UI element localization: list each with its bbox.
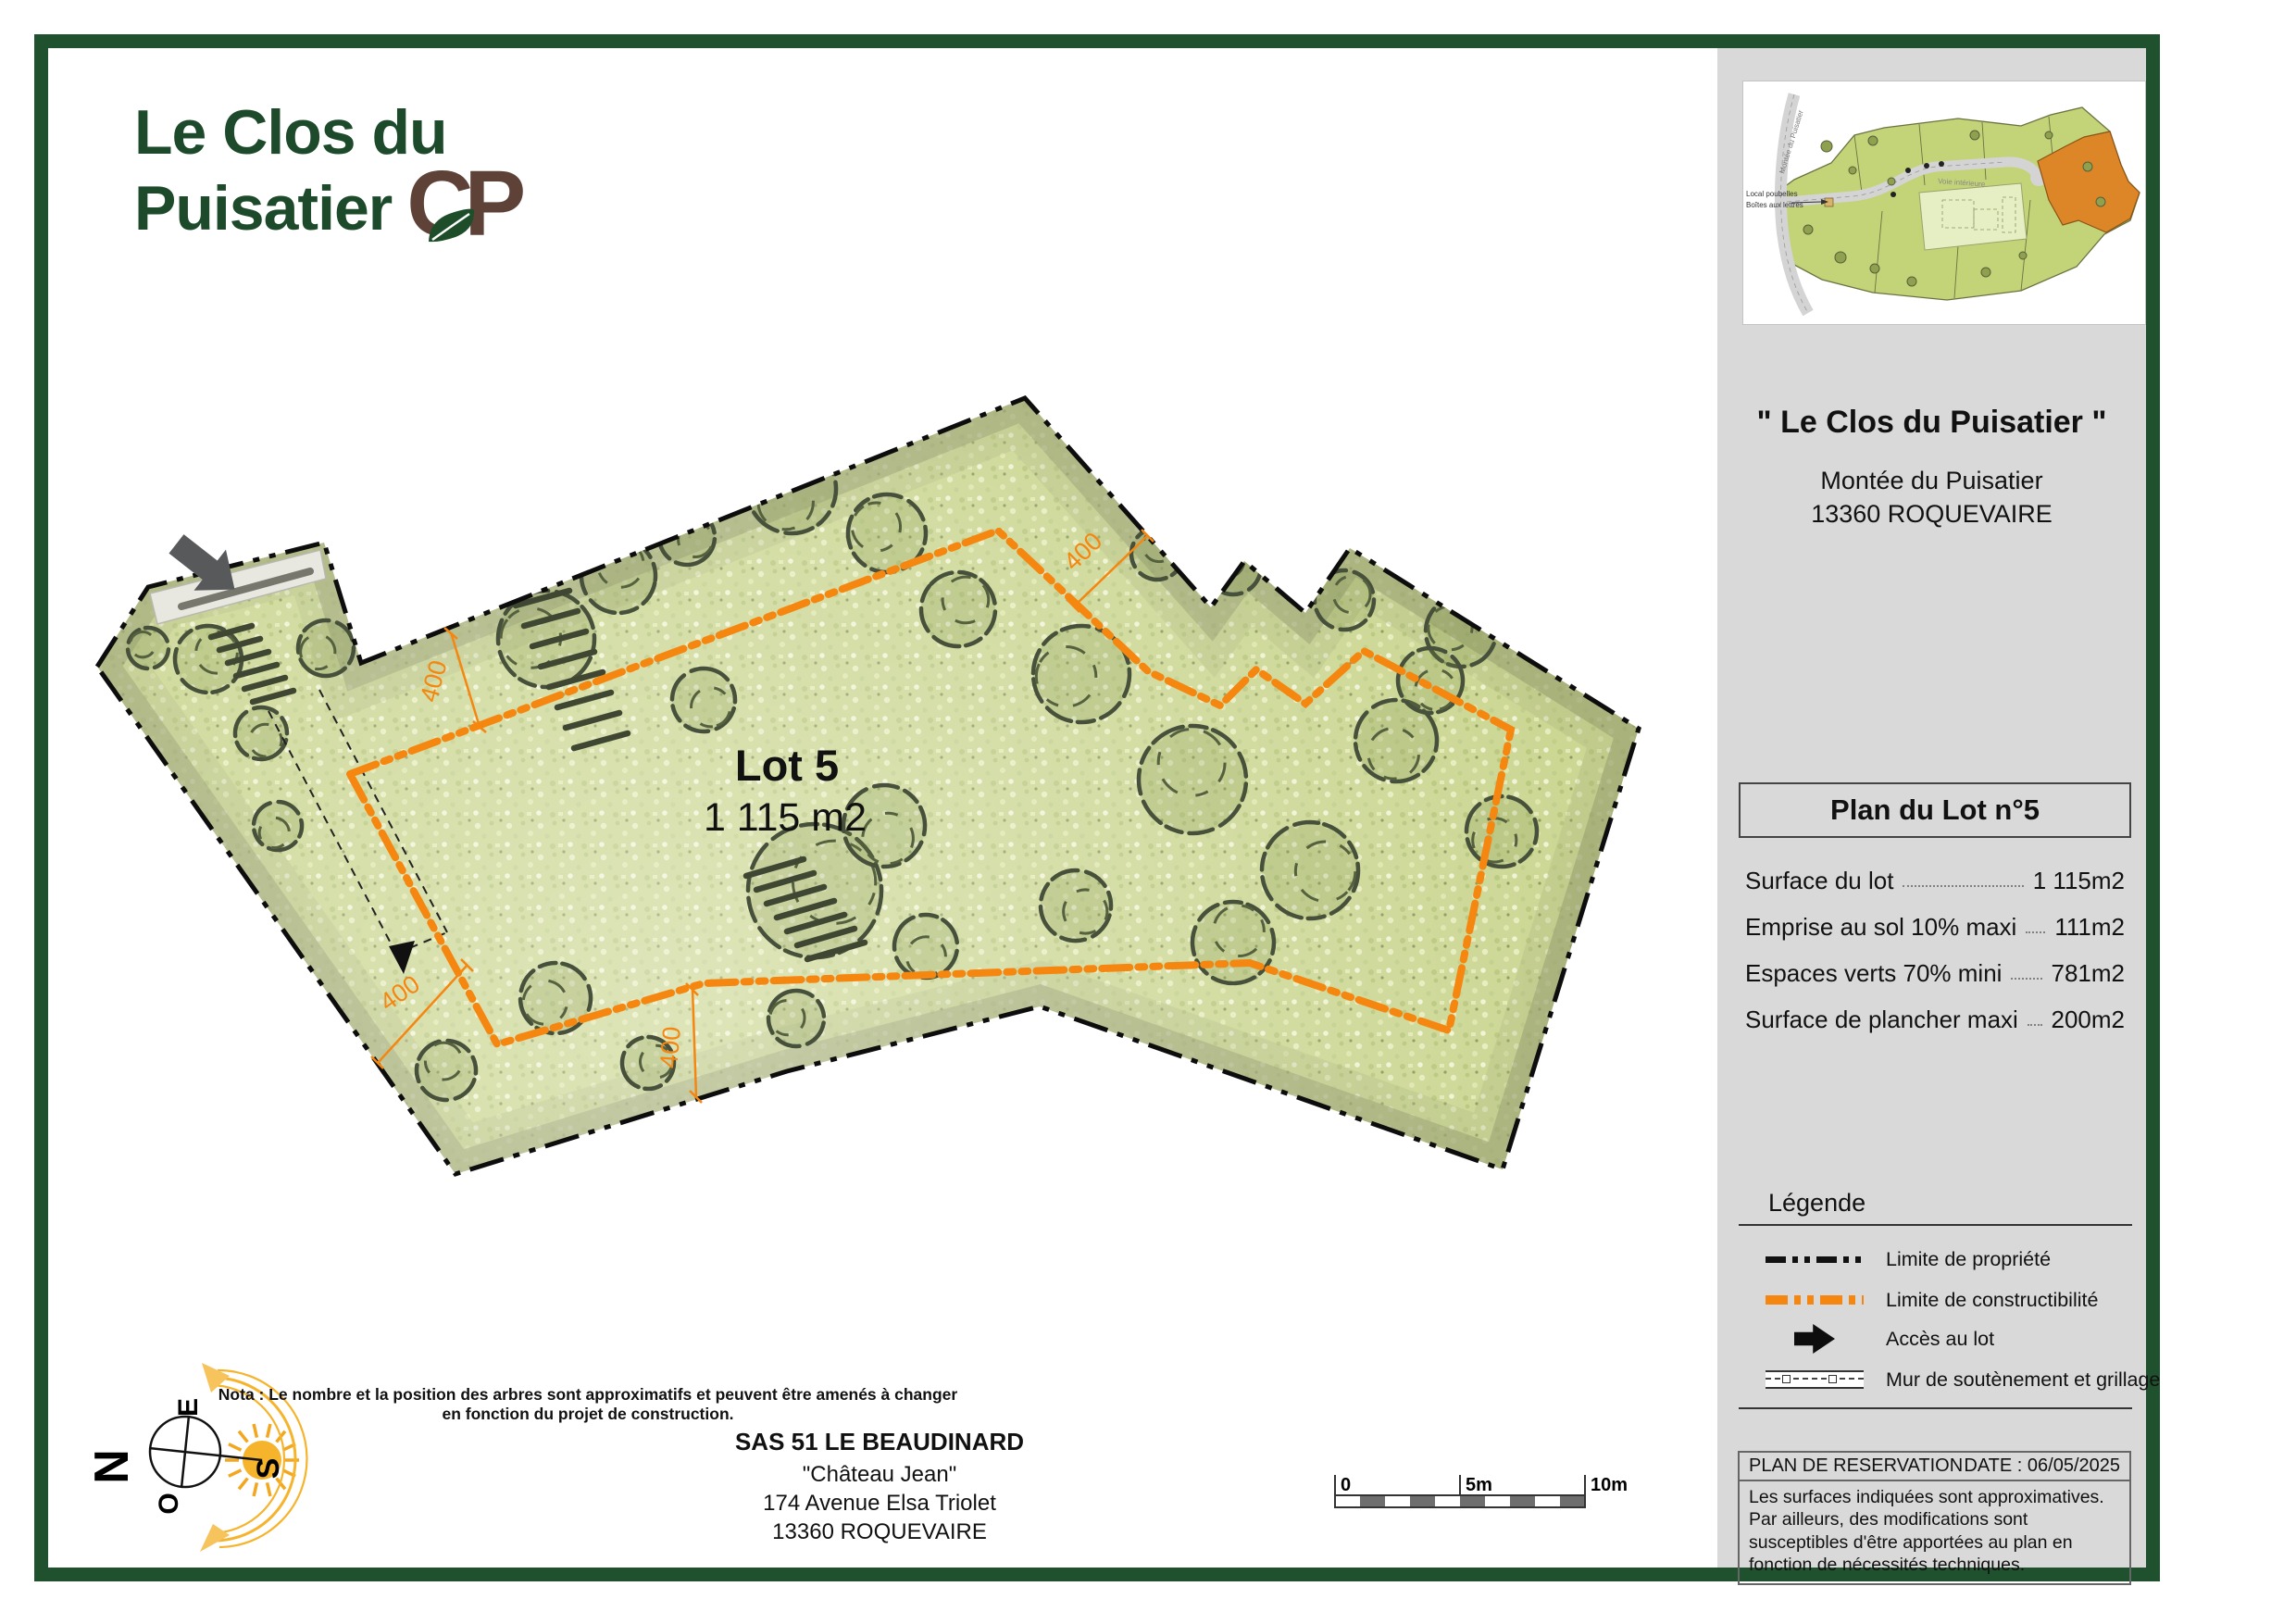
row-value: 1 115m2 xyxy=(2033,867,2125,895)
lot-area-label: 1 115 m2 xyxy=(704,795,867,840)
legend-item-constructibility: Limite de constructibilité xyxy=(1764,1281,2134,1318)
sidebar-address-line1: Montée du Puisatier xyxy=(1717,467,2146,495)
dotted-leader xyxy=(2011,978,2041,980)
table-row: Surface du lot 1 115m2 xyxy=(1745,867,2125,895)
legend-title: Légende xyxy=(1768,1189,1865,1218)
constructibility-line-sample xyxy=(1766,1295,1864,1305)
compass-west: O xyxy=(154,1493,184,1514)
row-value: 781m2 xyxy=(2052,959,2126,988)
minimap-label-bins: Local poubelles xyxy=(1746,190,1798,198)
scale-10m: 10m xyxy=(1591,1475,1628,1495)
scale-0: 0 xyxy=(1341,1475,1351,1495)
row-value: 200m2 xyxy=(2052,1006,2126,1034)
sidebar-address-line2: 13360 ROQUEVAIRE xyxy=(1717,500,2146,529)
legend-divider-top xyxy=(1739,1224,2132,1226)
plan-lot-title-box: Plan du Lot n°5 xyxy=(1739,782,2131,838)
scale-5m: 5m xyxy=(1466,1475,1492,1495)
developer-line4: 13360 ROQUEVAIRE xyxy=(648,1518,1111,1546)
row-label: Emprise au sol 10% maxi xyxy=(1745,913,2016,942)
compass-east: E xyxy=(173,1398,204,1417)
access-arrow-icon xyxy=(1794,1320,1835,1357)
scale-bar: 0 5m 10m xyxy=(1335,1475,1628,1507)
sidebar-project-title: " Le Clos du Puisatier " xyxy=(1717,405,2146,441)
dim-label-d: 400 xyxy=(655,1025,686,1069)
compass-north: N xyxy=(85,1449,139,1484)
lot-plan-drawing: 400 400 400 400 Lot 5 1 115 m2 N E O S 0… xyxy=(48,48,1717,1568)
dotted-leader xyxy=(2026,931,2045,933)
developer-name: SAS 51 LE BEAUDINARD xyxy=(648,1428,1111,1456)
site-minimap: Local poubelles Boîtes aux lettres Monté… xyxy=(1742,81,2146,325)
table-row: Espaces verts 70% mini 781m2 xyxy=(1745,959,2125,988)
info-sidebar: Local poubelles Boîtes aux lettres Monté… xyxy=(1717,48,2146,1568)
page: { "logo": { "line1": "Le Clos du", "line… xyxy=(0,0,2296,1624)
row-label: Surface du lot xyxy=(1745,867,1893,895)
dotted-leader xyxy=(1903,885,2023,887)
compass-south: S xyxy=(251,1458,286,1480)
table-row: Surface de plancher maxi 200m2 xyxy=(1745,1006,2125,1034)
reservation-disclaimer: Les surfaces indiquées sont approximativ… xyxy=(1738,1481,2131,1585)
legend-item-property: Limite de propriété xyxy=(1764,1241,2134,1278)
minimap-label-mail: Boîtes aux lettres xyxy=(1746,201,1803,209)
row-label: Espaces verts 70% mini xyxy=(1745,959,2002,988)
minimap-common-area xyxy=(1919,183,2027,250)
retaining-wall-sample xyxy=(1766,1370,1864,1389)
table-row: Emprise au sol 10% maxi 111m2 xyxy=(1745,913,2125,942)
lot-surface-table: Surface du lot 1 115m2 Emprise au sol 10… xyxy=(1745,867,2125,1052)
reservation-date: DATE : 06/05/2025 xyxy=(1964,1455,2120,1477)
developer-line3: 174 Avenue Elsa Triolet xyxy=(648,1489,1111,1518)
row-label: Surface de plancher maxi xyxy=(1745,1006,2018,1034)
reservation-block: PLAN DE RESERVATION DATE : 06/05/2025 Le… xyxy=(1738,1451,2131,1585)
legend-item-access: Accès au lot xyxy=(1764,1320,2134,1357)
legend-item-wall: Mur de soutènement et grillage xyxy=(1764,1361,2134,1398)
row-value: 111m2 xyxy=(2054,913,2125,942)
lot-number-label: Lot 5 xyxy=(735,741,839,790)
property-line-sample xyxy=(1766,1256,1864,1263)
dotted-leader xyxy=(2028,1024,2042,1026)
legend-divider-bottom xyxy=(1739,1407,2132,1409)
developer-block: SAS 51 LE BEAUDINARD "Château Jean" 174 … xyxy=(648,1428,1111,1546)
reservation-title: PLAN DE RESERVATION xyxy=(1749,1455,1963,1477)
nota-text: Nota : Le nombre et la position des arbr… xyxy=(213,1385,963,1424)
developer-line2: "Château Jean" xyxy=(648,1460,1111,1489)
